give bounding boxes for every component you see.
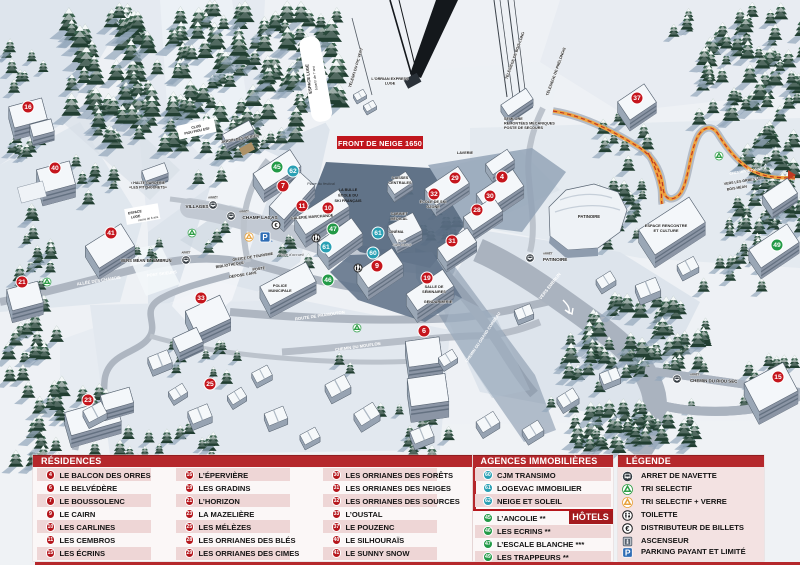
svg-text:ARRÊT: ARRÊT	[208, 195, 218, 200]
svg-text:CENTRALES: CENTRALES	[388, 181, 412, 185]
svg-text:LA BULLE: LA BULLE	[339, 188, 358, 192]
svg-text:REMONTÉES MÉCANIQUES: REMONTÉES MÉCANIQUES	[504, 121, 555, 126]
svg-text:SÉMINAIRES: SÉMINAIRES	[422, 289, 446, 294]
svg-text:PATINOIRE: PATINOIRE	[543, 257, 567, 262]
svg-text:P: P	[262, 233, 268, 242]
svg-text:Place du festival: Place du festival	[307, 182, 335, 186]
svg-text:CHAMP LACAS: CHAMP LACAS	[242, 215, 278, 221]
svg-text:10: 10	[324, 205, 332, 212]
svg-text:61: 61	[374, 230, 382, 237]
svg-text:CINÉMA: CINÉMA	[389, 229, 404, 234]
svg-text:32: 32	[430, 191, 438, 198]
svg-text:37: 37	[633, 95, 641, 102]
svg-text:POLICE: POLICE	[273, 284, 288, 288]
svg-text:MÉDICAL: MÉDICAL	[390, 216, 408, 221]
svg-text:46: 46	[324, 277, 332, 284]
svg-text:CAISSES: CAISSES	[392, 176, 409, 180]
svg-text:21: 21	[18, 279, 26, 286]
svg-text:49: 49	[773, 242, 781, 249]
svg-text:Salle Madoul: Salle Madoul	[393, 243, 412, 247]
svg-text:MUNICIPALE: MUNICIPALE	[268, 289, 292, 293]
svg-text:15: 15	[774, 374, 782, 381]
svg-text:60: 60	[369, 250, 377, 257]
svg-text:«LES PITCHOUNETS»: «LES PITCHOUNETS»	[129, 185, 167, 189]
svg-text:31: 31	[448, 238, 456, 245]
svg-text:23: 23	[84, 397, 92, 404]
svg-text:PATINOIRE: PATINOIRE	[578, 214, 600, 219]
svg-text:29: 29	[451, 175, 459, 182]
svg-text:11: 11	[298, 203, 305, 210]
svg-text:LUGE: LUGE	[385, 82, 396, 86]
svg-text:6: 6	[422, 326, 426, 335]
svg-text:16: 16	[24, 104, 32, 111]
svg-text:ARRÊT: ARRÊT	[543, 251, 553, 256]
svg-text:19: 19	[423, 275, 431, 282]
svg-text:SALLE DE: SALLE DE	[425, 285, 444, 289]
svg-text:Place d'accueil: Place d'accueil	[278, 253, 303, 257]
svg-text:7: 7	[281, 181, 285, 190]
svg-text:61: 61	[322, 244, 330, 251]
svg-text:OZONE: OZONE	[426, 205, 440, 209]
svg-text:30: 30	[486, 193, 494, 200]
svg-text:ET CULTURE: ET CULTURE	[653, 228, 678, 233]
svg-text:SKI FRANÇAIS: SKI FRANÇAIS	[334, 199, 361, 203]
svg-text:4: 4	[500, 172, 504, 181]
svg-text:CHEMIN DU RIOU SEC: CHEMIN DU RIOU SEC	[690, 378, 738, 384]
svg-text:41: 41	[107, 230, 115, 237]
svg-text:28: 28	[473, 207, 481, 214]
svg-text:9: 9	[375, 261, 379, 270]
svg-text:GENDARMERIE: GENDARMERIE	[424, 300, 453, 304]
svg-text:ARRÊT: ARRÊT	[239, 209, 249, 214]
svg-text:SEMLORE: SEMLORE	[504, 117, 523, 121]
svg-text:VILLAGES: VILLAGES	[186, 204, 209, 209]
svg-text:ÉCOLE DU: ÉCOLE DU	[338, 192, 358, 197]
svg-text:FRONT DE NEIGE 1650: FRONT DE NEIGE 1650	[338, 139, 422, 148]
svg-text:POSTE DE SECOURS: POSTE DE SECOURS	[504, 126, 543, 130]
svg-text:ARRÊT: ARRÊT	[690, 372, 700, 377]
svg-text:47: 47	[329, 226, 337, 233]
svg-text:P: P	[625, 548, 631, 558]
svg-text:25: 25	[206, 381, 214, 388]
svg-text:L'ORRIAN EXPRESS: L'ORRIAN EXPRESS	[371, 77, 409, 81]
svg-text:40: 40	[51, 165, 59, 172]
svg-text:45: 45	[273, 164, 281, 171]
svg-text:LAVERIE: LAVERIE	[457, 151, 474, 155]
svg-text:62: 62	[289, 168, 297, 175]
svg-text:• HALTE GARDERIE: • HALTE GARDERIE	[131, 181, 166, 185]
svg-text:CABINET: CABINET	[391, 212, 409, 216]
svg-text:VERS MÉAN ET EMBRUN: VERS MÉAN ET EMBRUN	[121, 258, 172, 263]
svg-text:33: 33	[197, 295, 205, 302]
